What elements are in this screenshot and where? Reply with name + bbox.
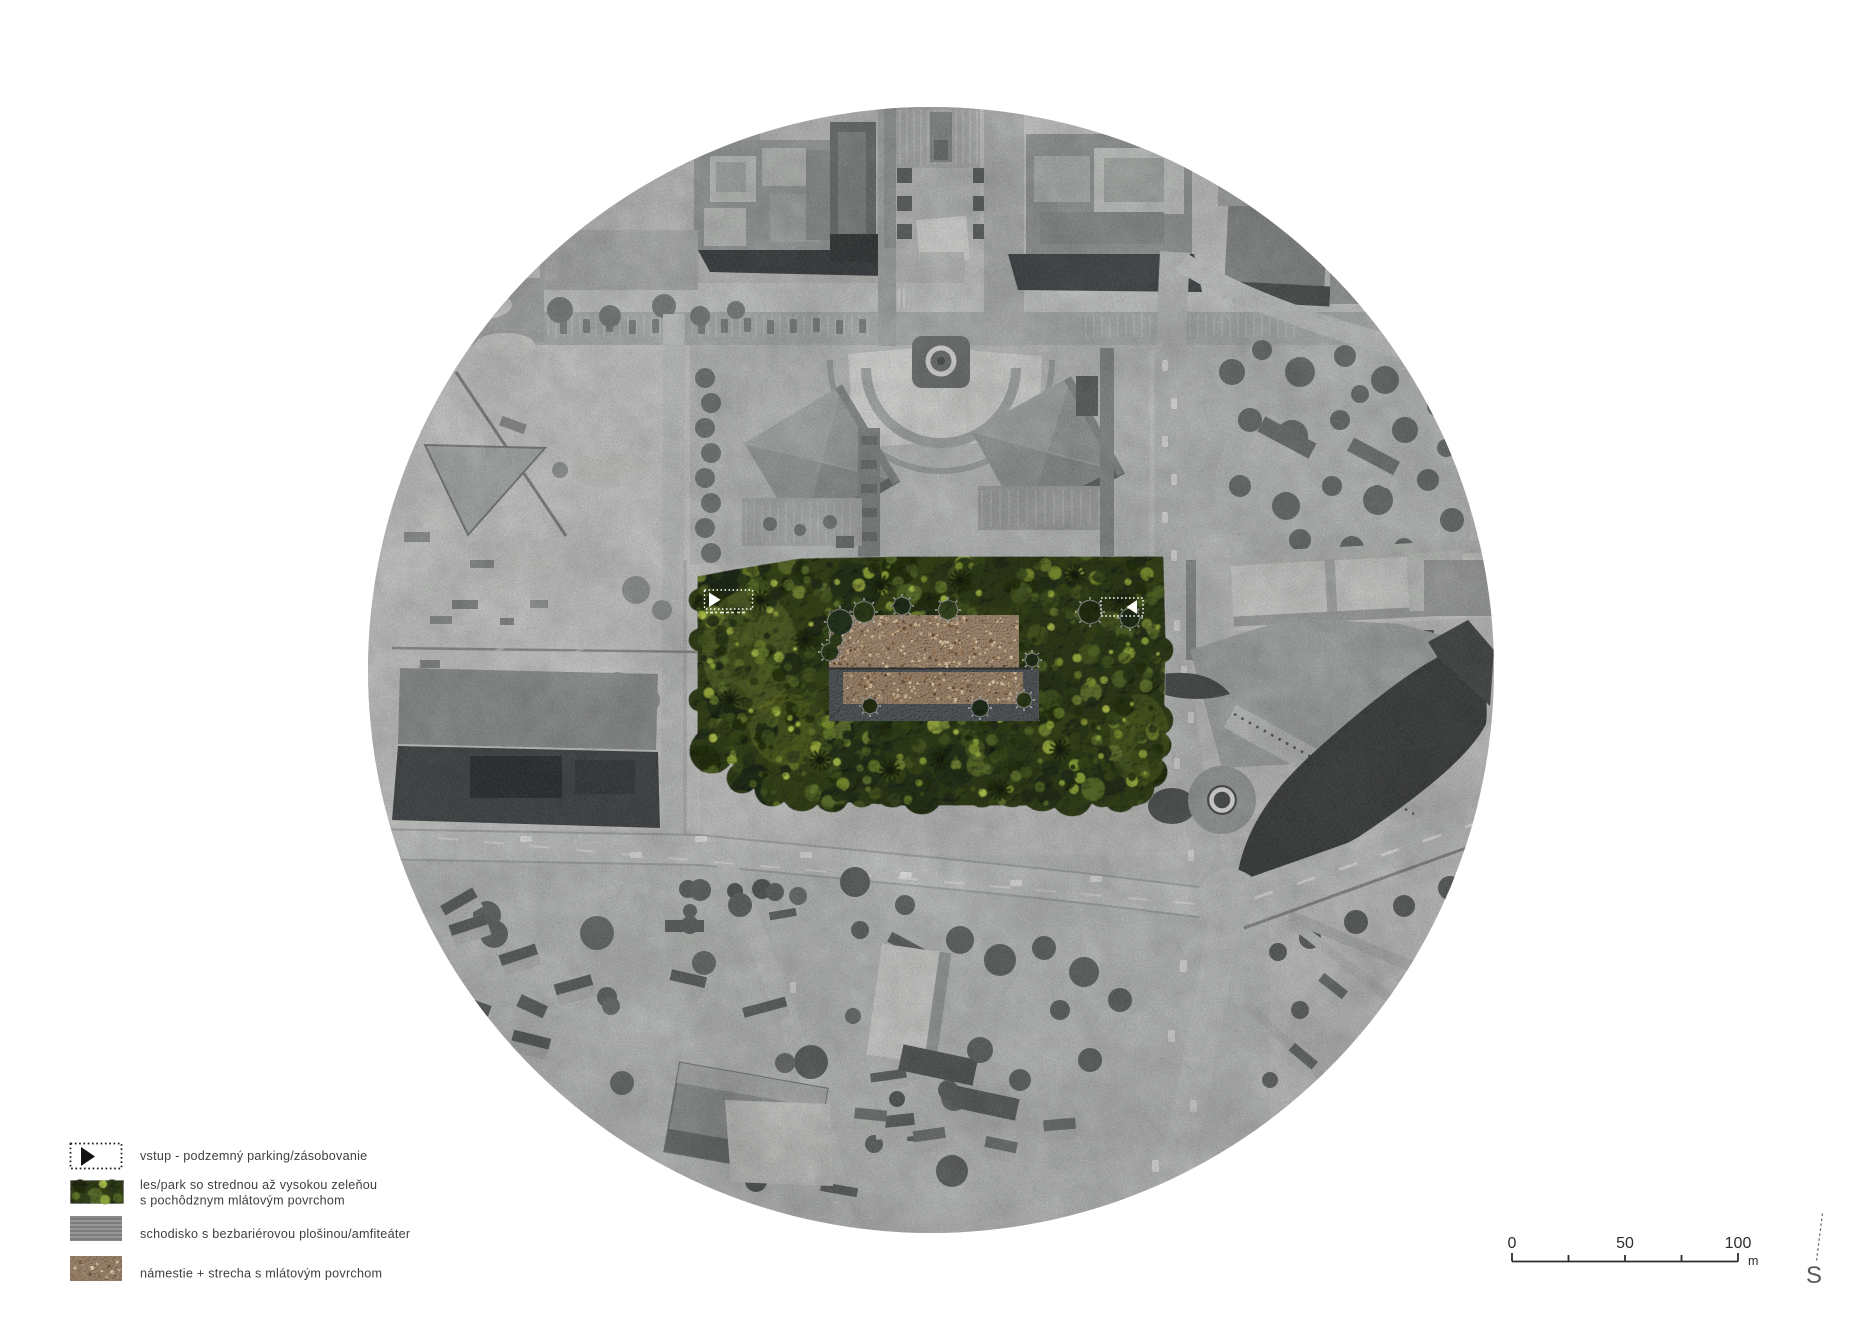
- svg-text:0: 0: [1508, 1235, 1517, 1252]
- svg-text:s pochôdznym mlátovým povrchom: s pochôdznym mlátovým povrchom: [140, 1194, 345, 1208]
- svg-text:vstup - podzemný parking/zásob: vstup - podzemný parking/zásobovanie: [140, 1149, 367, 1163]
- svg-text:S: S: [1806, 1262, 1822, 1289]
- svg-text:námestie + strecha s mlátovým: námestie + strecha s mlátovým povrchom: [140, 1267, 382, 1281]
- svg-text:m: m: [1748, 1254, 1758, 1268]
- svg-text:100: 100: [1725, 1235, 1752, 1252]
- svg-text:50: 50: [1616, 1235, 1634, 1252]
- svg-text:les/park so strednou až vysoko: les/park so strednou až vysokou zeleňou: [140, 1178, 377, 1192]
- svg-text:schodisko s bezbariérovou plo: schodisko s bezbariérovou plošinou/amfit…: [140, 1227, 410, 1241]
